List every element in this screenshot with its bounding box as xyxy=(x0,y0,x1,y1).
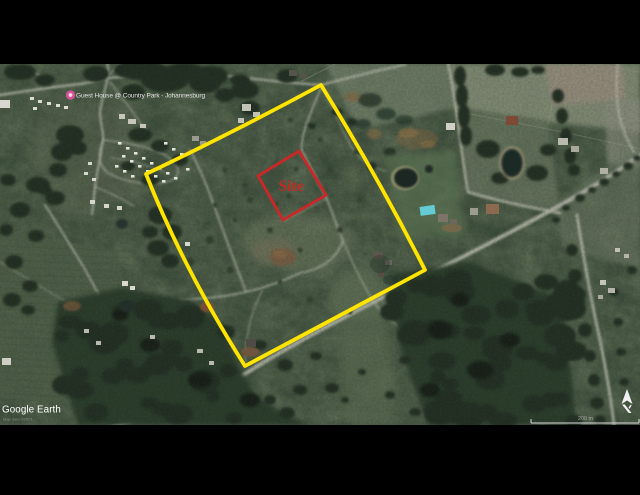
svg-text:Site: Site xyxy=(279,178,304,195)
svg-text:Map data ©2021: Map data ©2021 xyxy=(3,417,33,422)
svg-text:200 m: 200 m xyxy=(578,416,593,422)
svg-text:Google Earth: Google Earth xyxy=(2,405,61,416)
svg-text:Guest House @ Country Park - J: Guest House @ Country Park - Johannesbur… xyxy=(76,93,205,100)
